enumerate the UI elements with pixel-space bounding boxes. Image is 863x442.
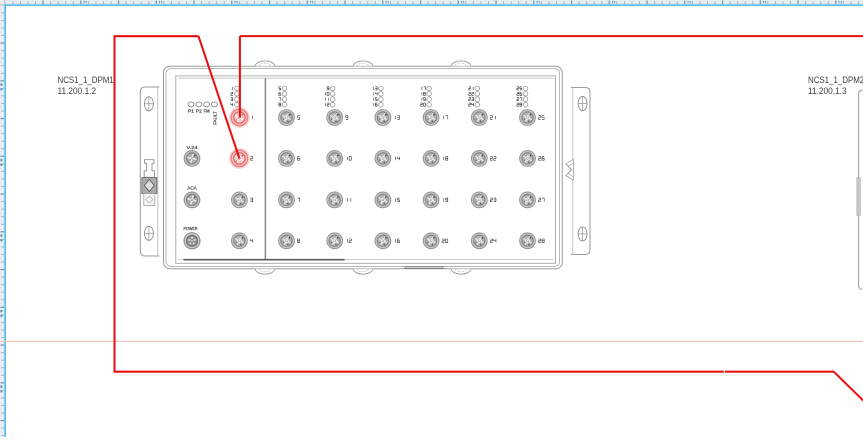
svg-text:NCS1_1_DPM2: NCS1_1_DPM2 — [808, 75, 863, 85]
svg-text:NCS1_1_DPM1: NCS1_1_DPM1 — [58, 75, 114, 85]
svg-text:FAULT: FAULT — [213, 111, 218, 125]
svg-text:11.200.1.2: 11.200.1.2 — [58, 86, 97, 96]
svg-text:V.24: V.24 — [187, 145, 199, 150]
svg-text:11.200.1.3: 11.200.1.3 — [808, 86, 847, 96]
svg-text:P2: P2 — [196, 108, 203, 113]
svg-text:FM: FM — [204, 108, 211, 113]
svg-text:P1: P1 — [188, 108, 195, 113]
svg-text:ACA: ACA — [187, 186, 197, 191]
svg-text:POWER: POWER — [184, 226, 198, 231]
